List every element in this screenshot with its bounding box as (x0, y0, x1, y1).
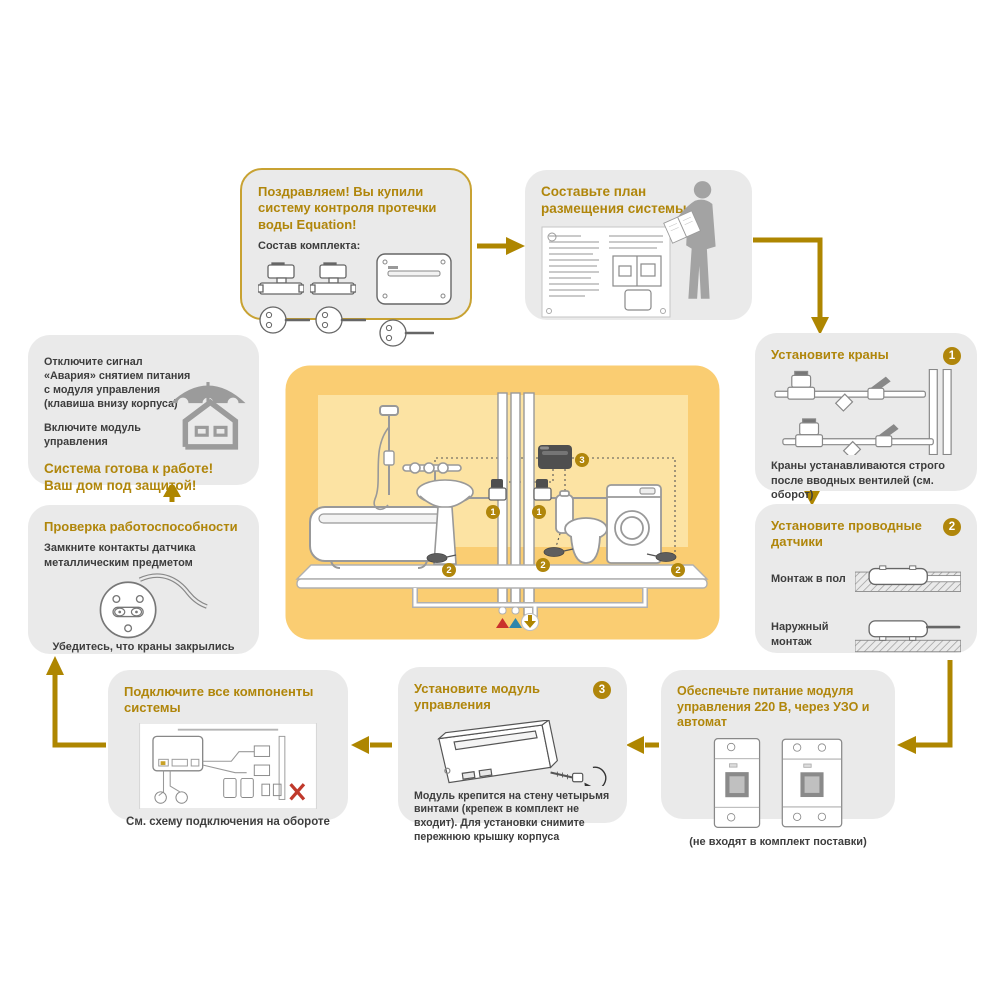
leak-protection-infographic: Поздравляем! Вы купили систему контроля … (0, 0, 1000, 1000)
scene-badge-valve: 1 (486, 505, 500, 519)
install-module-caption: Модуль крепится на стену четырьмя винтам… (414, 790, 611, 845)
system-ready-line1: Система готова к работе! (44, 461, 243, 478)
step-congrats: Поздравляем! Вы купили систему контроля … (240, 168, 472, 320)
valves-piping-illustration (771, 369, 961, 455)
scene-badge-sensor: 2 (536, 558, 550, 572)
person-reading-icon (650, 180, 742, 308)
system-ready-line2: Ваш дом под защитой! (44, 478, 243, 495)
wiring-diagram-illustration (138, 723, 318, 809)
step-install-module: Установите модуль управления 3 (398, 667, 627, 823)
install-sensors-title: Установите проводные датчики (771, 518, 935, 551)
step-test: Проверка работоспособности Замкните конт… (28, 505, 259, 654)
step-install-sensors: Установите проводные датчики 2 Монтаж в … (755, 504, 977, 653)
test-instruction: Замкните контакты датчика металлическим … (44, 541, 243, 570)
arrow-power-to-module (626, 736, 659, 754)
water-sensor-icon (258, 305, 310, 335)
surface-mount-illustration (855, 615, 961, 655)
connect-title: Подключите все компоненты системы (124, 684, 332, 717)
congrats-title: Поздравляем! Вы купили систему контроля … (258, 184, 454, 233)
control-module-icon (376, 253, 452, 305)
step-install-valves: Установите краны 1 (755, 333, 977, 491)
scene-control-module (538, 445, 572, 469)
sensor-test-illustration (69, 568, 219, 640)
bathroom-illustration (285, 365, 720, 640)
connect-caption: См. схему подключения на обороте (124, 815, 332, 830)
test-title: Проверка работоспособности (44, 519, 243, 535)
power-caption: (не входят в комплект поставки) (677, 835, 879, 849)
step-plan: Составьте план размещения системы (525, 170, 752, 320)
arrow-plan-to-valves (753, 240, 829, 335)
installation-scene: 1 1 3 2 2 2 (285, 365, 720, 640)
surface-mount-label: Наружный монтаж (771, 620, 855, 649)
step-power: Обеспечьте питание модуля управления 220… (661, 670, 895, 819)
arrow-module-to-connect (351, 736, 392, 754)
install-valves-title: Установите краны (771, 347, 889, 363)
floor-mount-illustration (855, 561, 961, 599)
install-valves-caption: Краны устанавливаются строго после вводн… (771, 459, 961, 502)
scene-badge-sensor: 2 (671, 563, 685, 577)
step-connect: Подключите все компоненты системы (108, 670, 348, 820)
module-mounting-illustration (414, 720, 611, 786)
floor-mount-label: Монтаж в пол (771, 572, 855, 586)
scene-badge-module: 3 (575, 453, 589, 467)
scene-floor-sensor-1 (427, 554, 447, 563)
motorized-valve-icon (310, 259, 356, 299)
kit-label: Состав комплекта: (258, 239, 454, 253)
rcd-breaker-icon (779, 737, 845, 829)
step-finish: Отключите сигнал «Авария» снятием питани… (28, 335, 259, 485)
scene-badge-valve: 1 (532, 505, 546, 519)
scene-floor-sensor-2 (544, 548, 564, 557)
install-module-title: Установите модуль управления (414, 681, 587, 714)
motorized-valve-icon (258, 259, 304, 299)
scene-badge-sensor: 2 (442, 563, 456, 577)
protected-house-umbrella-icon (165, 367, 251, 451)
step-2-badge: 2 (943, 518, 961, 536)
arrow-connect-to-test (46, 656, 106, 745)
water-sensor-icon (314, 305, 366, 335)
circuit-breaker-icon (711, 737, 763, 829)
power-title: Обеспечьте питание модуля управления 220… (677, 684, 879, 731)
arrow-congrats-to-plan (477, 237, 525, 255)
arrow-sensors-to-power (897, 660, 950, 754)
step-1-badge: 1 (943, 347, 961, 365)
water-sensor-icon (376, 318, 434, 348)
test-caption: Убедитесь, что краны закрылись (44, 640, 243, 654)
scene-floor-sensor-3 (656, 553, 676, 562)
step-3-badge: 3 (593, 681, 611, 699)
